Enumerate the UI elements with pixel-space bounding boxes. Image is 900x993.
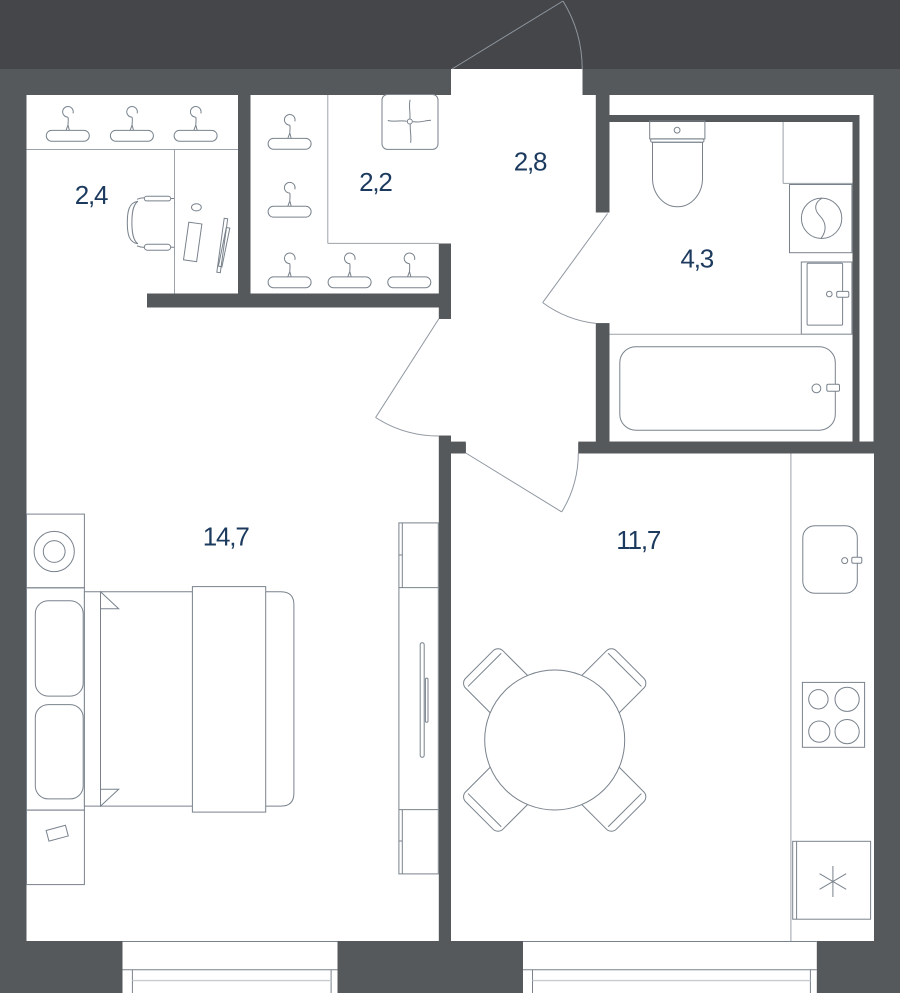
svg-text:2,4: 2,4 [75,180,108,210]
svg-text:11,7: 11,7 [616,525,661,555]
svg-text:2,8: 2,8 [514,146,547,176]
svg-text:14,7: 14,7 [203,522,250,552]
svg-text:4,3: 4,3 [681,244,714,274]
svg-text:2,2: 2,2 [359,167,392,197]
